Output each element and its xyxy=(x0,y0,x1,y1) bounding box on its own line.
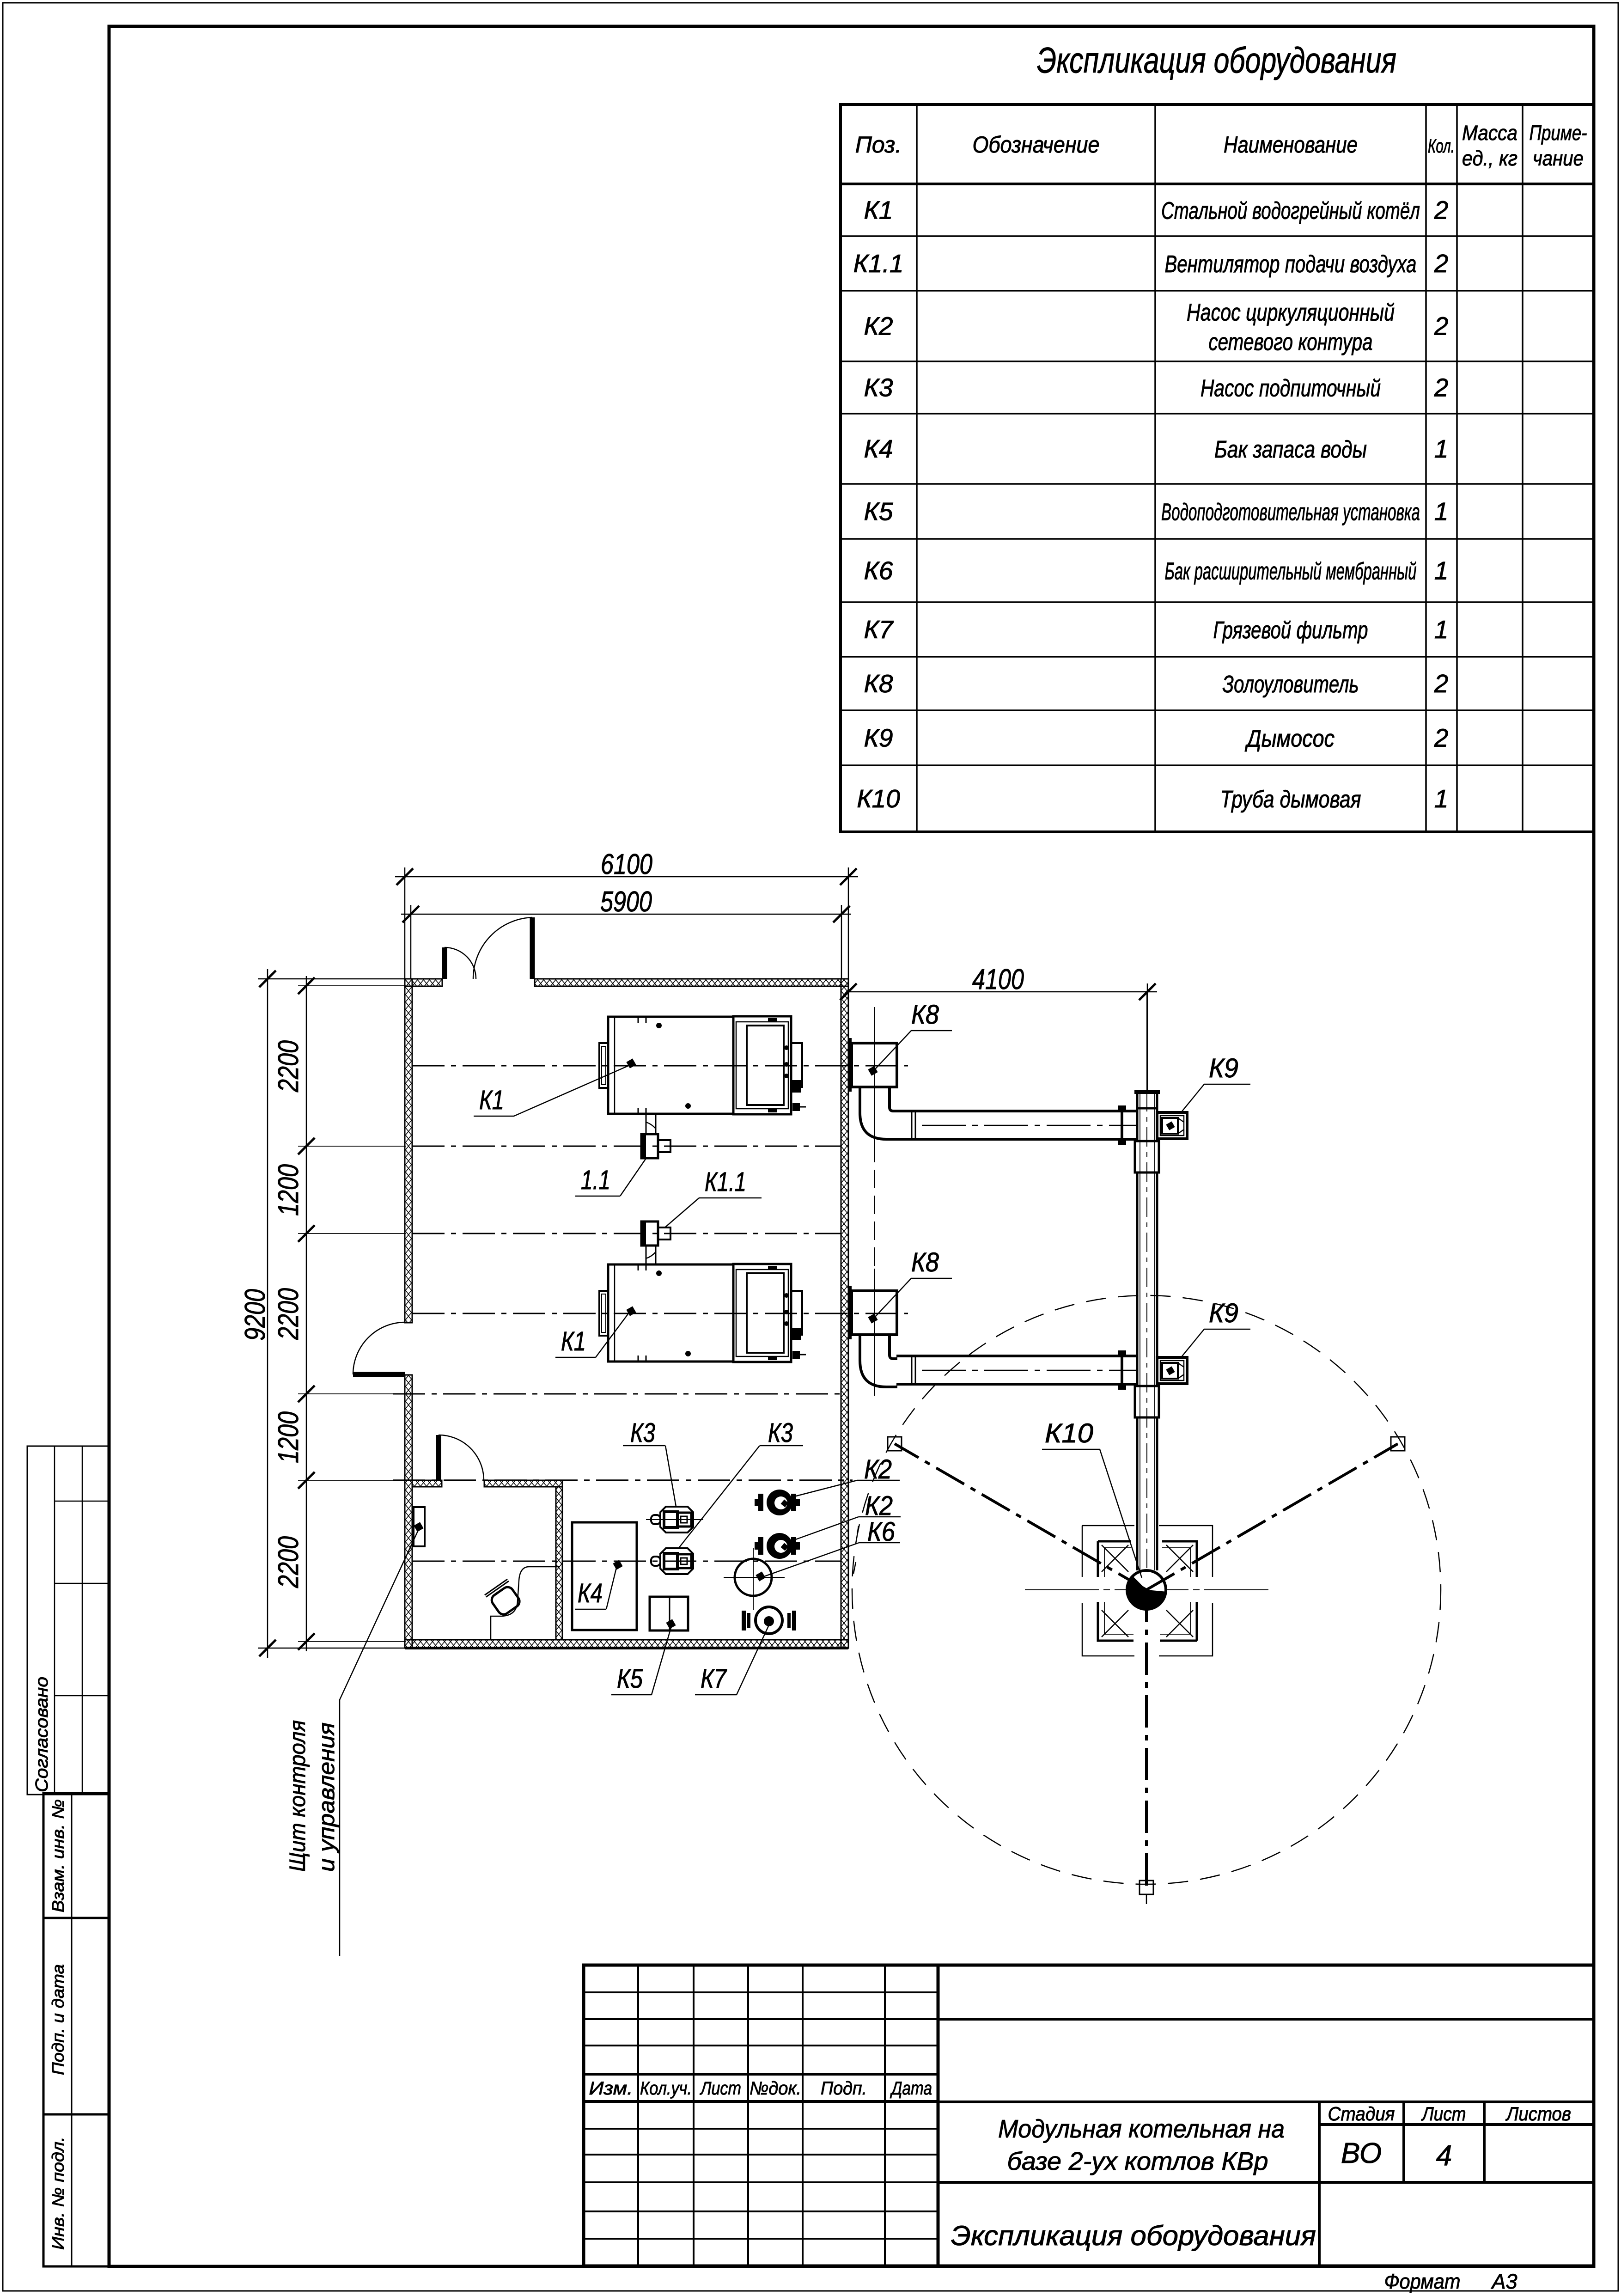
svg-text:К9: К9 xyxy=(1209,1298,1238,1328)
svg-text:2200: 2200 xyxy=(273,1288,305,1340)
svg-text:Вентилятор подачи воздуха: Вентилятор подачи воздуха xyxy=(1165,251,1417,278)
svg-text:Лист: Лист xyxy=(699,2078,741,2099)
svg-text:К1: К1 xyxy=(479,1085,504,1115)
svg-text:1: 1 xyxy=(1434,784,1449,813)
svg-text:Формат: Формат xyxy=(1384,2270,1461,2293)
svg-text:4: 4 xyxy=(1436,2140,1452,2172)
svg-text:Стадия: Стадия xyxy=(1328,2103,1395,2125)
svg-text:К5: К5 xyxy=(617,1664,643,1694)
svg-text:К10: К10 xyxy=(857,784,900,813)
svg-text:4100: 4100 xyxy=(972,964,1024,995)
svg-text:и управления: и управления xyxy=(315,1722,339,1872)
svg-text:К1: К1 xyxy=(561,1326,586,1356)
svg-text:К3: К3 xyxy=(768,1418,793,1448)
svg-text:К5: К5 xyxy=(864,497,893,526)
svg-text:5900: 5900 xyxy=(600,886,652,918)
svg-text:2: 2 xyxy=(1434,669,1449,698)
svg-text:1200: 1200 xyxy=(273,1411,305,1463)
svg-text:Масса: Масса xyxy=(1462,121,1517,145)
svg-text:1.1: 1.1 xyxy=(581,1165,610,1195)
svg-text:Подп. и дата: Подп. и дата xyxy=(49,1964,67,2075)
svg-text:2: 2 xyxy=(1434,724,1449,752)
svg-text:К7: К7 xyxy=(864,615,894,644)
svg-text:2: 2 xyxy=(1434,312,1449,341)
svg-text:№док.: №док. xyxy=(750,2078,801,2099)
svg-text:К7: К7 xyxy=(701,1664,727,1694)
svg-text:Насос подпиточный: Насос подпиточный xyxy=(1201,375,1381,402)
svg-text:2200: 2200 xyxy=(273,1040,305,1093)
svg-text:К6: К6 xyxy=(864,556,893,585)
svg-text:Бак расширительный мембранный: Бак расширительный мембранный xyxy=(1165,558,1417,585)
svg-text:6100: 6100 xyxy=(601,849,652,880)
svg-text:Экспликация оборудования: Экспликация оборудования xyxy=(1037,40,1396,80)
svg-text:К2: К2 xyxy=(864,312,893,341)
svg-text:1: 1 xyxy=(1434,497,1449,526)
svg-text:Насос циркуляционный: Насос циркуляционный xyxy=(1187,299,1395,326)
svg-text:Золоуловитель: Золоуловитель xyxy=(1223,671,1359,698)
svg-text:Дымосос: Дымосос xyxy=(1245,726,1335,752)
svg-text:К1.1: К1.1 xyxy=(705,1167,746,1197)
svg-text:Щит контроля: Щит контроля xyxy=(286,1720,310,1872)
svg-text:К8: К8 xyxy=(911,1000,939,1030)
svg-text:2200: 2200 xyxy=(273,1536,305,1588)
svg-text:базе 2-ух котлов КВр: базе 2-ух котлов КВр xyxy=(1007,2147,1268,2175)
svg-text:А3: А3 xyxy=(1490,2270,1517,2293)
svg-text:1: 1 xyxy=(1434,556,1449,585)
svg-text:Кол.: Кол. xyxy=(1428,135,1455,157)
svg-text:2: 2 xyxy=(1434,249,1449,278)
svg-text:чание: чание xyxy=(1533,147,1584,170)
svg-text:2: 2 xyxy=(1434,196,1449,225)
svg-text:1: 1 xyxy=(1434,615,1449,644)
svg-text:Инв. № подл.: Инв. № подл. xyxy=(49,2137,67,2250)
svg-text:Стальной водогрейный котёл: Стальной водогрейный котёл xyxy=(1161,198,1420,225)
svg-text:К4: К4 xyxy=(578,1578,603,1608)
svg-text:Взам. инв. №: Взам. инв. № xyxy=(49,1799,67,1912)
svg-text:Согласовано: Согласовано xyxy=(32,1677,52,1792)
svg-text:Обозначение: Обозначение xyxy=(973,132,1100,158)
svg-text:ед., кг: ед., кг xyxy=(1462,147,1517,170)
svg-text:К8: К8 xyxy=(864,669,893,698)
svg-text:К3: К3 xyxy=(864,373,893,402)
svg-text:Экспликация оборудования: Экспликация оборудования xyxy=(951,2220,1316,2251)
svg-text:1: 1 xyxy=(1434,434,1449,463)
svg-text:Листов: Листов xyxy=(1505,2103,1571,2125)
svg-text:Дата: Дата xyxy=(890,2078,932,2099)
svg-text:К4: К4 xyxy=(864,434,893,463)
svg-text:К10: К10 xyxy=(1045,1418,1093,1448)
svg-text:Водоподготовительная установка: Водоподготовительная установка xyxy=(1161,499,1420,526)
svg-text:ВО: ВО xyxy=(1341,2137,1382,2169)
svg-text:Бак запаса воды: Бак запаса воды xyxy=(1214,436,1367,463)
svg-text:1200: 1200 xyxy=(273,1164,305,1216)
svg-text:Труба дымовая: Труба дымовая xyxy=(1220,786,1361,813)
svg-text:Грязевой фильтр: Грязевой фильтр xyxy=(1213,617,1368,644)
svg-text:9200: 9200 xyxy=(239,1289,271,1341)
svg-text:К9: К9 xyxy=(1209,1053,1238,1083)
svg-text:Приме-: Приме- xyxy=(1530,121,1587,145)
svg-text:Модульная котельная на: Модульная котельная на xyxy=(998,2114,1285,2143)
svg-text:К8: К8 xyxy=(911,1247,939,1277)
svg-text:Подп.: Подп. xyxy=(821,2078,867,2099)
svg-text:К3: К3 xyxy=(630,1418,655,1448)
svg-text:Кол.уч.: Кол.уч. xyxy=(640,2078,692,2099)
svg-text:сетевого контура: сетевого контура xyxy=(1209,329,1373,356)
svg-text:Лист: Лист xyxy=(1421,2103,1466,2125)
svg-text:Наименование: Наименование xyxy=(1224,132,1358,158)
svg-text:К1.1: К1.1 xyxy=(853,249,904,278)
svg-text:Изм.: Изм. xyxy=(589,2078,633,2099)
svg-text:К9: К9 xyxy=(864,724,893,752)
svg-text:К1: К1 xyxy=(864,196,893,225)
svg-text:2: 2 xyxy=(1434,373,1449,402)
svg-text:Поз.: Поз. xyxy=(855,132,902,158)
